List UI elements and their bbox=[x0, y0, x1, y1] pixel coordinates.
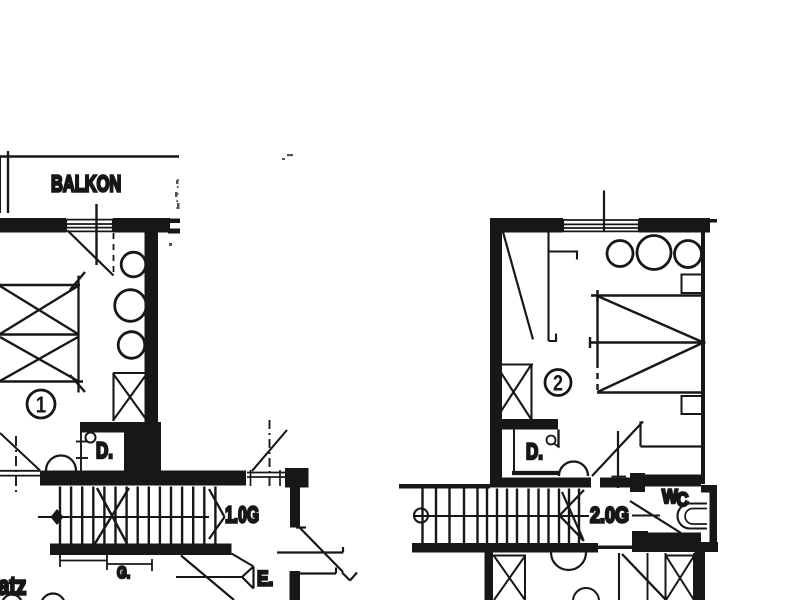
svg-text:G.: G. bbox=[117, 563, 130, 582]
svg-text:1.0G: 1.0G bbox=[225, 503, 259, 529]
svg-text:D.: D. bbox=[96, 439, 113, 464]
svg-text:2: 2 bbox=[553, 372, 563, 396]
svg-text:1: 1 bbox=[36, 392, 47, 419]
svg-text:E.: E. bbox=[257, 567, 273, 591]
svg-text:2.0G: 2.0G bbox=[590, 504, 629, 528]
svg-text:BALKON: BALKON bbox=[51, 172, 121, 197]
svg-text:D.: D. bbox=[526, 440, 543, 465]
svg-text:atz: atz bbox=[0, 571, 26, 600]
